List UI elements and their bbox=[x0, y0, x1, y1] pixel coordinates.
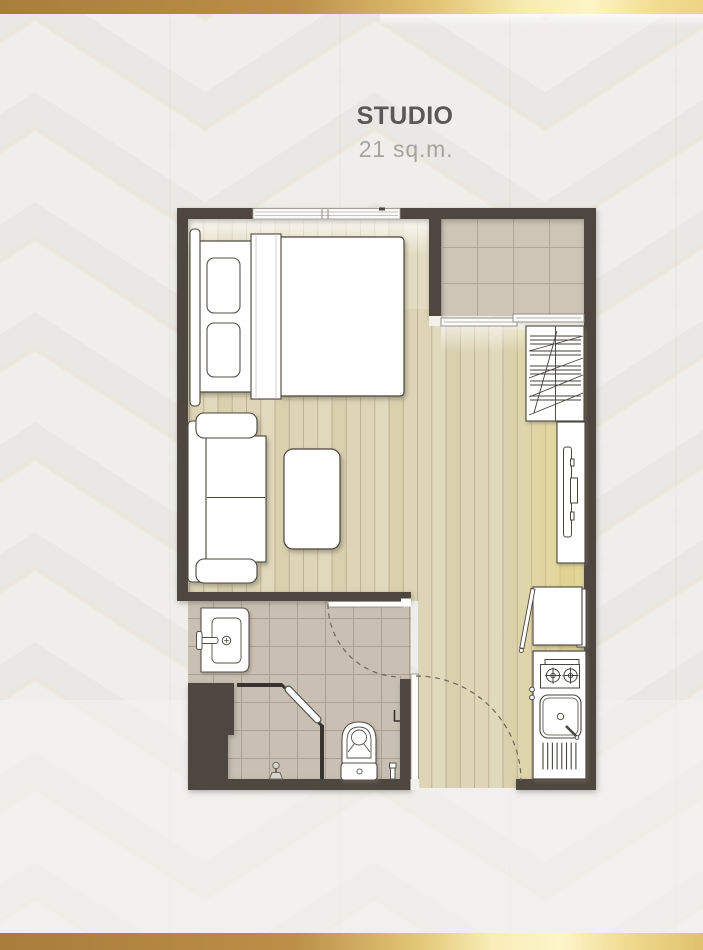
svg-text:STUDIO: STUDIO bbox=[357, 102, 454, 130]
svg-text:21 sq.m.: 21 sq.m. bbox=[359, 136, 454, 162]
